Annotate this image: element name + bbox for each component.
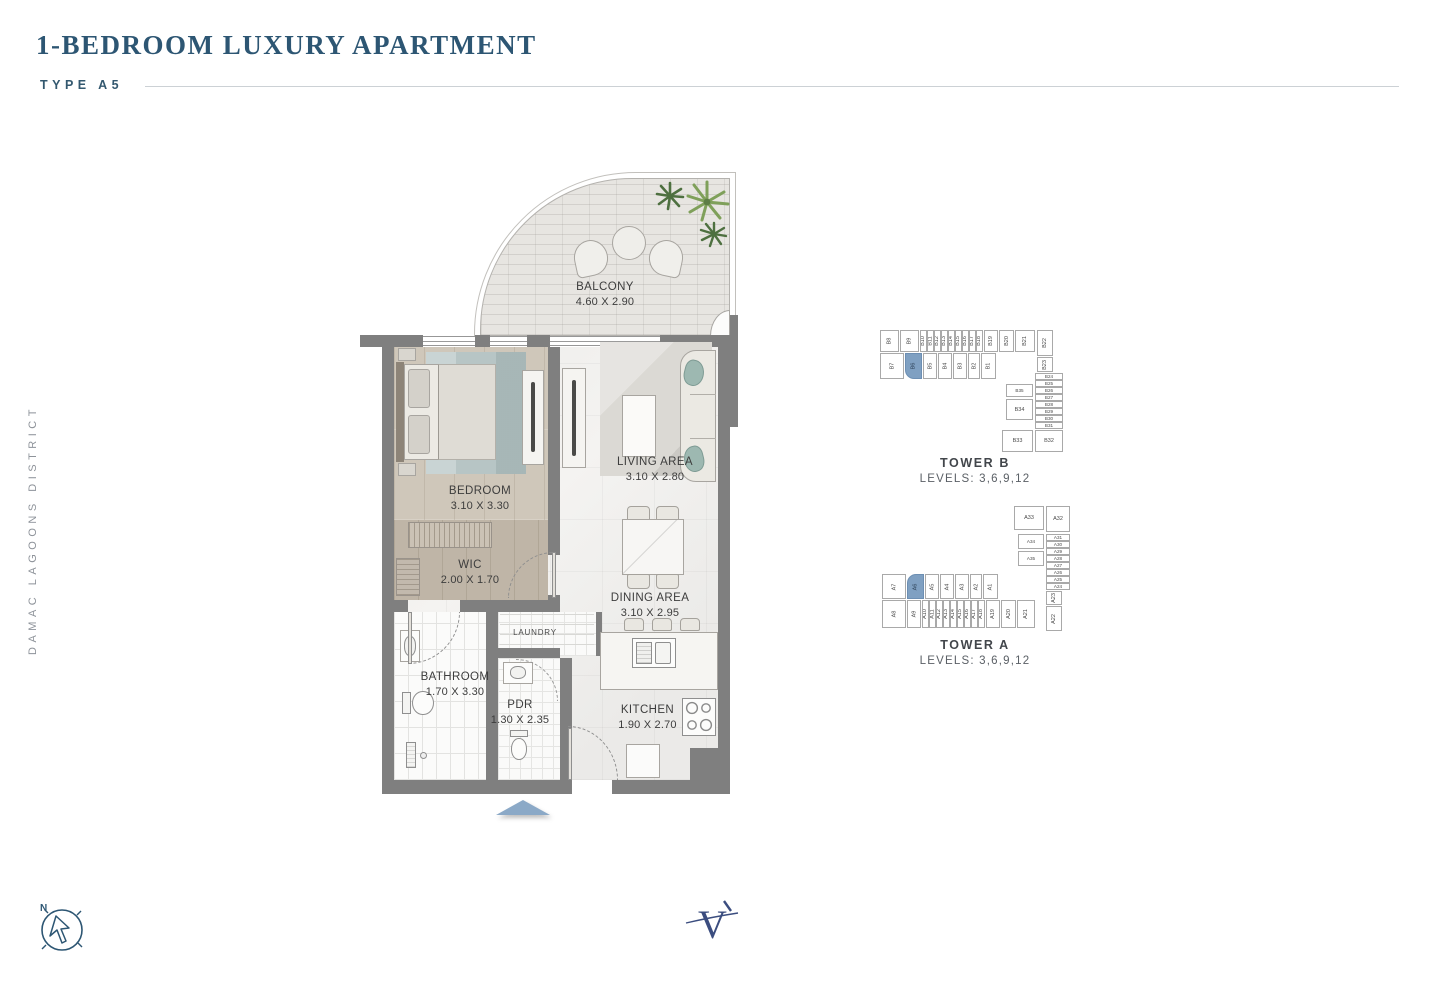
unit-cell-B35: B35 bbox=[1006, 384, 1033, 397]
unit-cell-A24: A24 bbox=[1046, 583, 1070, 590]
unit-cell-B5: B5 bbox=[923, 353, 937, 379]
bed-duvet bbox=[438, 364, 496, 460]
fridge bbox=[626, 744, 660, 778]
wall-top-pier bbox=[527, 335, 550, 347]
unit-cell-A17: A17 bbox=[971, 600, 978, 628]
unit-cell-A12: A12 bbox=[936, 600, 943, 628]
unit-cell-A13: A13 bbox=[943, 600, 950, 628]
nightstand bbox=[398, 463, 416, 476]
entrance-arrow bbox=[496, 800, 550, 815]
unit-cell-B33: B33 bbox=[1002, 430, 1033, 452]
wall-wic-bath bbox=[460, 600, 560, 612]
tower-b-title: TOWER B bbox=[880, 456, 1070, 470]
room-dims: 1.30 X 2.35 bbox=[475, 713, 565, 728]
unit-cell-A11: A11 bbox=[929, 600, 936, 628]
unit-cell-B30: B30 bbox=[1035, 415, 1063, 422]
tower-a-levels: LEVELS: 3,6,9,12 bbox=[880, 655, 1070, 667]
compass-north-label: N bbox=[40, 903, 47, 914]
unit-cell-B1: B1 bbox=[981, 353, 996, 379]
room-dims: 3.10 X 2.95 bbox=[590, 606, 710, 621]
unit-cell-A21: A21 bbox=[1017, 600, 1035, 628]
dining-table bbox=[622, 519, 684, 575]
unit-cell-A29: A29 bbox=[1046, 548, 1070, 555]
bed-headboard bbox=[396, 362, 404, 462]
tower-b-keyplan: B8B9B10B11B12B13B14B15B16B17B18B19B20B21… bbox=[880, 330, 1070, 454]
dining-label: DINING AREA 3.10 X 2.95 bbox=[590, 591, 710, 621]
room-name: KITCHEN bbox=[590, 703, 705, 718]
nightstand bbox=[398, 348, 416, 361]
unit-cell-B20: B20 bbox=[999, 330, 1014, 352]
laundry-label: LAUNDRY bbox=[498, 628, 572, 637]
unit-cell-B32: B32 bbox=[1035, 430, 1063, 452]
unit-cell-B23: B23 bbox=[1037, 357, 1053, 372]
wic-shelf bbox=[396, 558, 420, 596]
unit-cell-A31: A31 bbox=[1046, 534, 1070, 541]
unit-cell-A4: A4 bbox=[940, 574, 954, 599]
unit-cell-B7: B7 bbox=[880, 353, 904, 379]
divider-line bbox=[145, 86, 1399, 87]
unit-cell-A35: A35 bbox=[1018, 551, 1044, 566]
wall-top-pier bbox=[475, 335, 490, 347]
unit-cell-B25: B25 bbox=[1035, 380, 1063, 387]
unit-cell-B4: B4 bbox=[938, 353, 952, 379]
bedroom-window bbox=[423, 336, 475, 346]
living-label: LIVING AREA 3.10 X 2.80 bbox=[595, 455, 715, 485]
unit-cell-B6: B6 bbox=[905, 353, 922, 379]
unit-cell-A5: A5 bbox=[925, 574, 939, 599]
unit-cell-A18: A18 bbox=[978, 600, 985, 628]
unit-cell-A28: A28 bbox=[1046, 555, 1070, 562]
wardrobe bbox=[408, 522, 492, 548]
wall-right bbox=[718, 335, 730, 760]
bed-pillow bbox=[408, 415, 430, 454]
bed-pillow bbox=[408, 369, 430, 408]
type-row: TYPE A5 bbox=[40, 78, 1399, 92]
balcony-table bbox=[612, 226, 646, 260]
pdr-toilet-tank bbox=[510, 730, 528, 737]
unit-cell-A2: A2 bbox=[970, 574, 982, 599]
wall-wic-bath bbox=[382, 600, 408, 612]
brand-logo: V bbox=[684, 892, 740, 950]
unit-cell-B22: B22 bbox=[1037, 330, 1053, 356]
balcony-label: BALCONY 4.60 X 2.90 bbox=[540, 280, 670, 310]
brochure-page: 1-BEDROOM LUXURY APARTMENT TYPE A5 DAMAC… bbox=[0, 0, 1436, 984]
dining-chair bbox=[656, 574, 679, 589]
room-name: BEDROOM bbox=[420, 484, 540, 499]
room-name: WIC bbox=[420, 558, 520, 573]
unit-cell-B2: B2 bbox=[968, 353, 980, 379]
tower-b-levels: LEVELS: 3,6,9,12 bbox=[880, 473, 1070, 485]
room-name: BALCONY bbox=[540, 280, 670, 295]
unit-cell-B19: B19 bbox=[984, 330, 998, 352]
unit-cell-A10: A10 bbox=[922, 600, 929, 628]
unit-cell-A30: A30 bbox=[1046, 541, 1070, 548]
unit-cell-B21: B21 bbox=[1015, 330, 1035, 352]
unit-cell-A20: A20 bbox=[1001, 600, 1016, 628]
logo-letter: V bbox=[698, 902, 727, 947]
pdr-toilet-bowl bbox=[511, 738, 527, 760]
unit-cell-B15: B15 bbox=[955, 330, 962, 352]
sofa-cushion-line bbox=[690, 438, 716, 439]
living-tv-icon bbox=[572, 380, 576, 456]
room-dims: 4.60 X 2.90 bbox=[540, 295, 670, 310]
floor-plan: BALCONY 4.60 X 2.90 bbox=[360, 170, 760, 825]
room-dims: 3.10 X 3.30 bbox=[420, 499, 540, 514]
unit-cell-A1: A1 bbox=[983, 574, 998, 599]
room-name: BATHROOM bbox=[398, 670, 512, 685]
room-name: LAUNDRY bbox=[498, 628, 572, 637]
page-title: 1-BEDROOM LUXURY APARTMENT bbox=[36, 30, 537, 61]
unit-cell-B16: B16 bbox=[962, 330, 969, 352]
wall-bottom bbox=[612, 780, 690, 794]
unit-cell-B24: B24 bbox=[1035, 373, 1063, 380]
unit-cell-A34: A34 bbox=[1018, 534, 1044, 549]
unit-cell-A32: A32 bbox=[1046, 506, 1070, 532]
unit-cell-A3: A3 bbox=[955, 574, 969, 599]
sink-basin bbox=[636, 642, 652, 664]
room-dims: 2.00 X 1.70 bbox=[420, 573, 520, 588]
room-name: PDR bbox=[475, 698, 565, 713]
room-name: DINING AREA bbox=[590, 591, 710, 606]
unit-cell-A8: A8 bbox=[882, 600, 906, 628]
unit-cell-B31: B31 bbox=[1035, 422, 1063, 429]
unit-cell-A22: A22 bbox=[1046, 606, 1062, 631]
sofa-cushion-line bbox=[690, 394, 716, 395]
shower-drain bbox=[420, 752, 427, 759]
tower-a-title: TOWER A bbox=[880, 638, 1070, 652]
unit-cell-B34: B34 bbox=[1006, 399, 1033, 420]
unit-cell-A15: A15 bbox=[957, 600, 964, 628]
unit-cell-B10: B10 bbox=[920, 330, 927, 352]
coffee-table bbox=[622, 395, 656, 457]
bedroom-tv-icon bbox=[531, 382, 535, 452]
wall-left bbox=[382, 335, 394, 794]
pdr-label: PDR 1.30 X 2.35 bbox=[475, 698, 565, 728]
kitchen-label: KITCHEN 1.90 X 2.70 bbox=[590, 703, 705, 733]
unit-cell-B18: B18 bbox=[976, 330, 983, 352]
wall-bottom bbox=[382, 780, 486, 794]
bedroom-window bbox=[490, 336, 527, 346]
wall-bottom-right-block bbox=[690, 748, 730, 794]
unit-cell-B14: B14 bbox=[948, 330, 955, 352]
unit-cell-B8: B8 bbox=[880, 330, 899, 352]
district-side-label: DAMAC LAGOONS DISTRICT bbox=[27, 405, 39, 655]
wic-label: WIC 2.00 X 1.70 bbox=[420, 558, 520, 588]
room-dims: 3.10 X 2.80 bbox=[595, 470, 715, 485]
dining-chair bbox=[627, 574, 650, 589]
unit-cell-A27: A27 bbox=[1046, 562, 1070, 569]
unit-cell-B17: B17 bbox=[969, 330, 976, 352]
unit-cell-A26: A26 bbox=[1046, 569, 1070, 576]
room-dims: 1.90 X 2.70 bbox=[590, 718, 705, 733]
wall-bedroom-living bbox=[548, 347, 560, 555]
sink-basin bbox=[655, 642, 671, 664]
room-name: LIVING AREA bbox=[595, 455, 715, 470]
unit-cell-A19: A19 bbox=[986, 600, 1000, 628]
unit-cell-B3: B3 bbox=[953, 353, 967, 379]
wall-right-bump bbox=[730, 315, 738, 427]
entrance-door-leaf bbox=[568, 728, 572, 780]
tower-a-keyplan: A33A32A31A30A29A28A27A26A25A24A34A35A23A… bbox=[880, 506, 1070, 632]
unit-cell-A7: A7 bbox=[882, 574, 906, 599]
shower-fitting bbox=[406, 742, 416, 768]
compass-icon: N bbox=[34, 899, 88, 957]
unit-cell-A33: A33 bbox=[1014, 506, 1044, 530]
unit-cell-B27: B27 bbox=[1035, 394, 1063, 401]
unit-cell-A9: A9 bbox=[907, 600, 921, 628]
unit-cell-B12: B12 bbox=[934, 330, 941, 352]
unit-cell-B9: B9 bbox=[900, 330, 919, 352]
unit-cell-B26: B26 bbox=[1035, 387, 1063, 394]
wic-door-leaf bbox=[552, 552, 556, 598]
unit-cell-A23: A23 bbox=[1046, 591, 1062, 605]
unit-cell-B13: B13 bbox=[941, 330, 948, 352]
bathroom-door-leaf bbox=[408, 612, 412, 664]
unit-cell-A14: A14 bbox=[950, 600, 957, 628]
unit-cell-A6: A6 bbox=[907, 574, 924, 599]
unit-cell-B29: B29 bbox=[1035, 408, 1063, 415]
unit-cell-B28: B28 bbox=[1035, 401, 1063, 408]
bedroom-label: BEDROOM 3.10 X 3.30 bbox=[420, 484, 540, 514]
unit-cell-B11: B11 bbox=[927, 330, 934, 352]
unit-cell-A16: A16 bbox=[964, 600, 971, 628]
bathroom-label: BATHROOM 1.70 X 3.30 bbox=[398, 670, 512, 700]
type-label: TYPE A5 bbox=[40, 78, 123, 92]
unit-cell-A25: A25 bbox=[1046, 576, 1070, 583]
